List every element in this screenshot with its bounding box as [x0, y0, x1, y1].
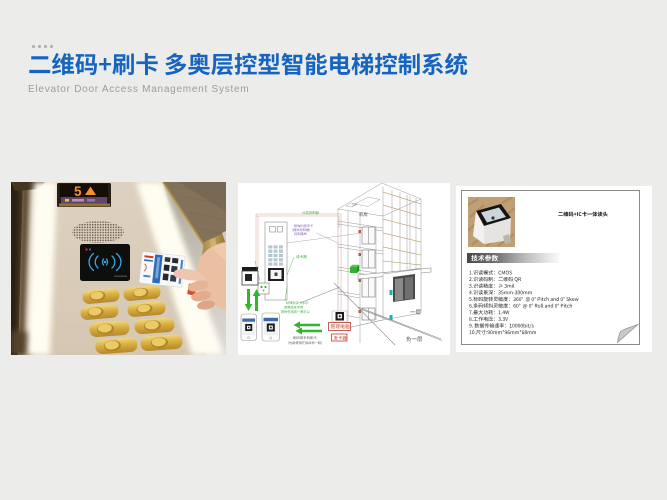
- svg-text:5: 5: [74, 184, 82, 199]
